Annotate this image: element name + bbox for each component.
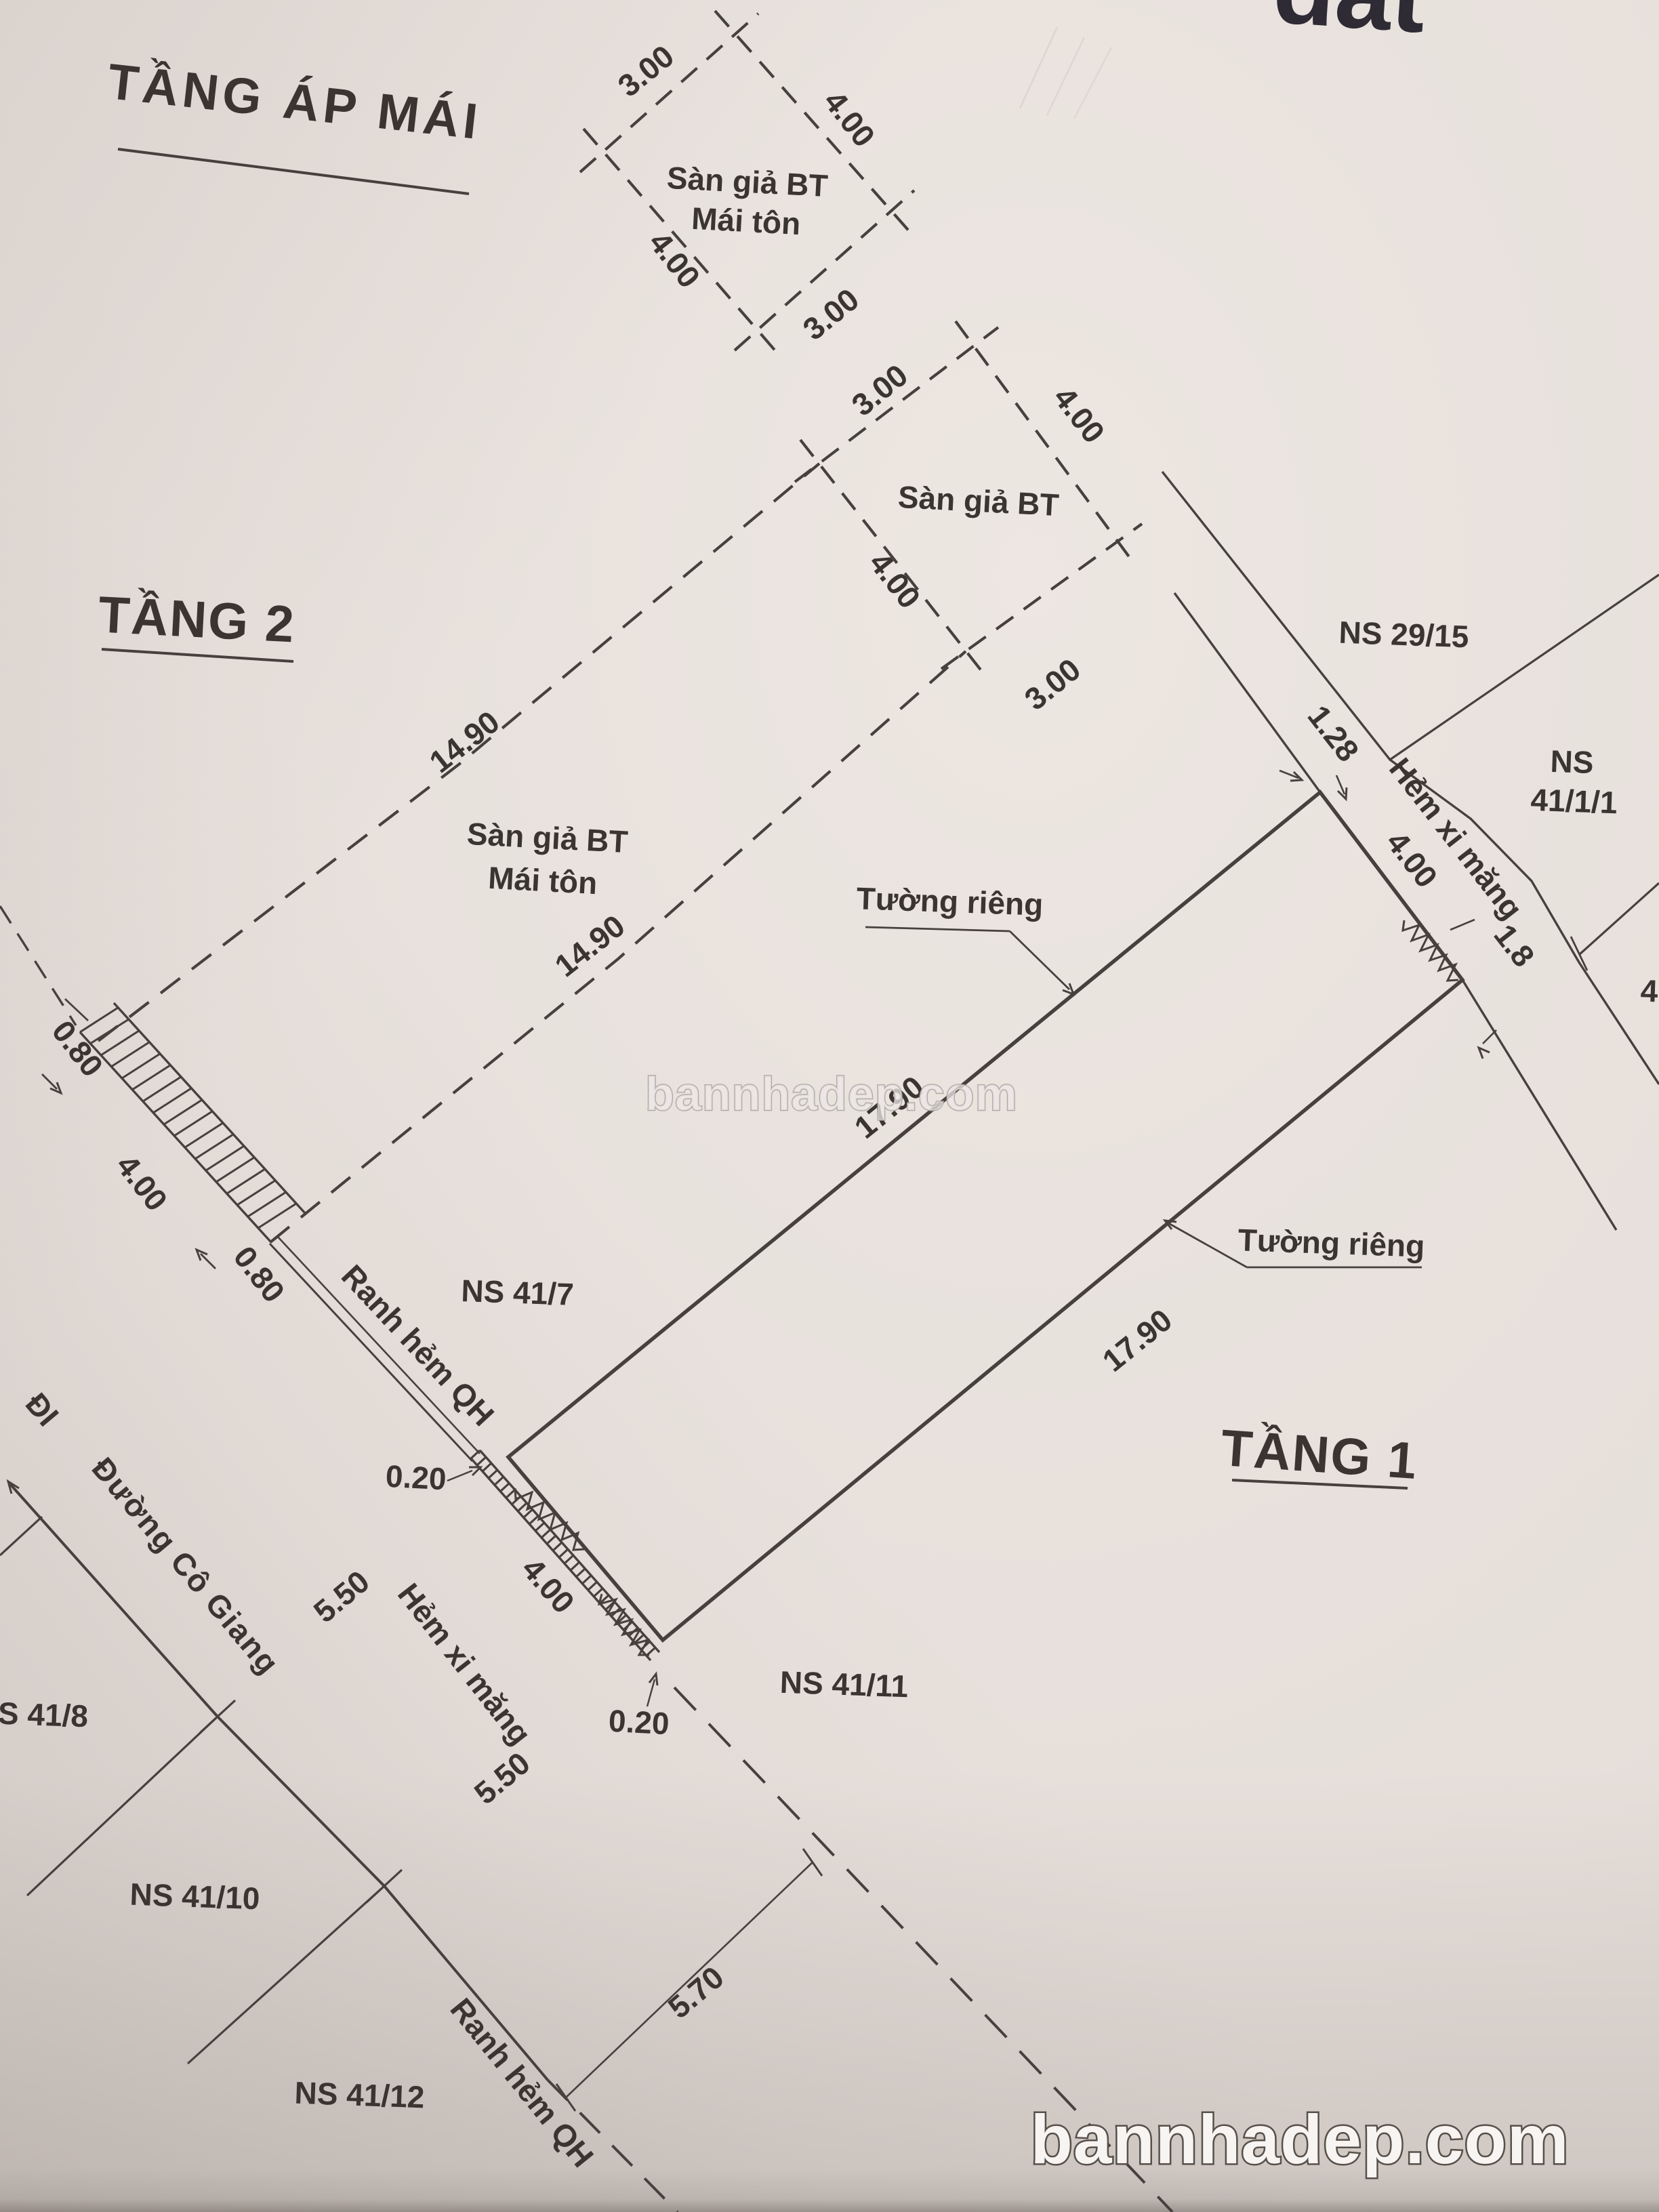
svg-text:NS 29/15: NS 29/15 <box>1338 615 1469 655</box>
svg-text:0.20: 0.20 <box>385 1458 447 1497</box>
svg-text:Tường riêng: Tường riêng <box>1237 1222 1425 1264</box>
svg-text:NS 41/10: NS 41/10 <box>129 1877 260 1917</box>
svg-text:S 41/8: S 41/8 <box>0 1696 89 1734</box>
svg-text:41/1/1: 41/1/1 <box>1530 782 1618 820</box>
svg-text:TẦNG 2: TẦNG 2 <box>97 586 297 653</box>
svg-text:4: 4 <box>1640 973 1659 1009</box>
svg-text:NS 41/11: NS 41/11 <box>779 1664 909 1704</box>
svg-text:Mái tôn: Mái tôn <box>487 860 598 901</box>
svg-text:0.20: 0.20 <box>608 1703 670 1742</box>
svg-text:Mái tôn: Mái tôn <box>691 201 801 241</box>
svg-text:bannhadep.com: bannhadep.com <box>1030 2101 1569 2178</box>
svg-text:NS 41/12: NS 41/12 <box>294 2075 425 2115</box>
svg-text:Tường riêng: Tường riêng <box>856 880 1044 922</box>
svg-text:NS 41/7: NS 41/7 <box>461 1273 575 1312</box>
svg-text:bannhadep.com: bannhadep.com <box>645 1067 1018 1120</box>
svg-text:NS: NS <box>1550 743 1595 780</box>
